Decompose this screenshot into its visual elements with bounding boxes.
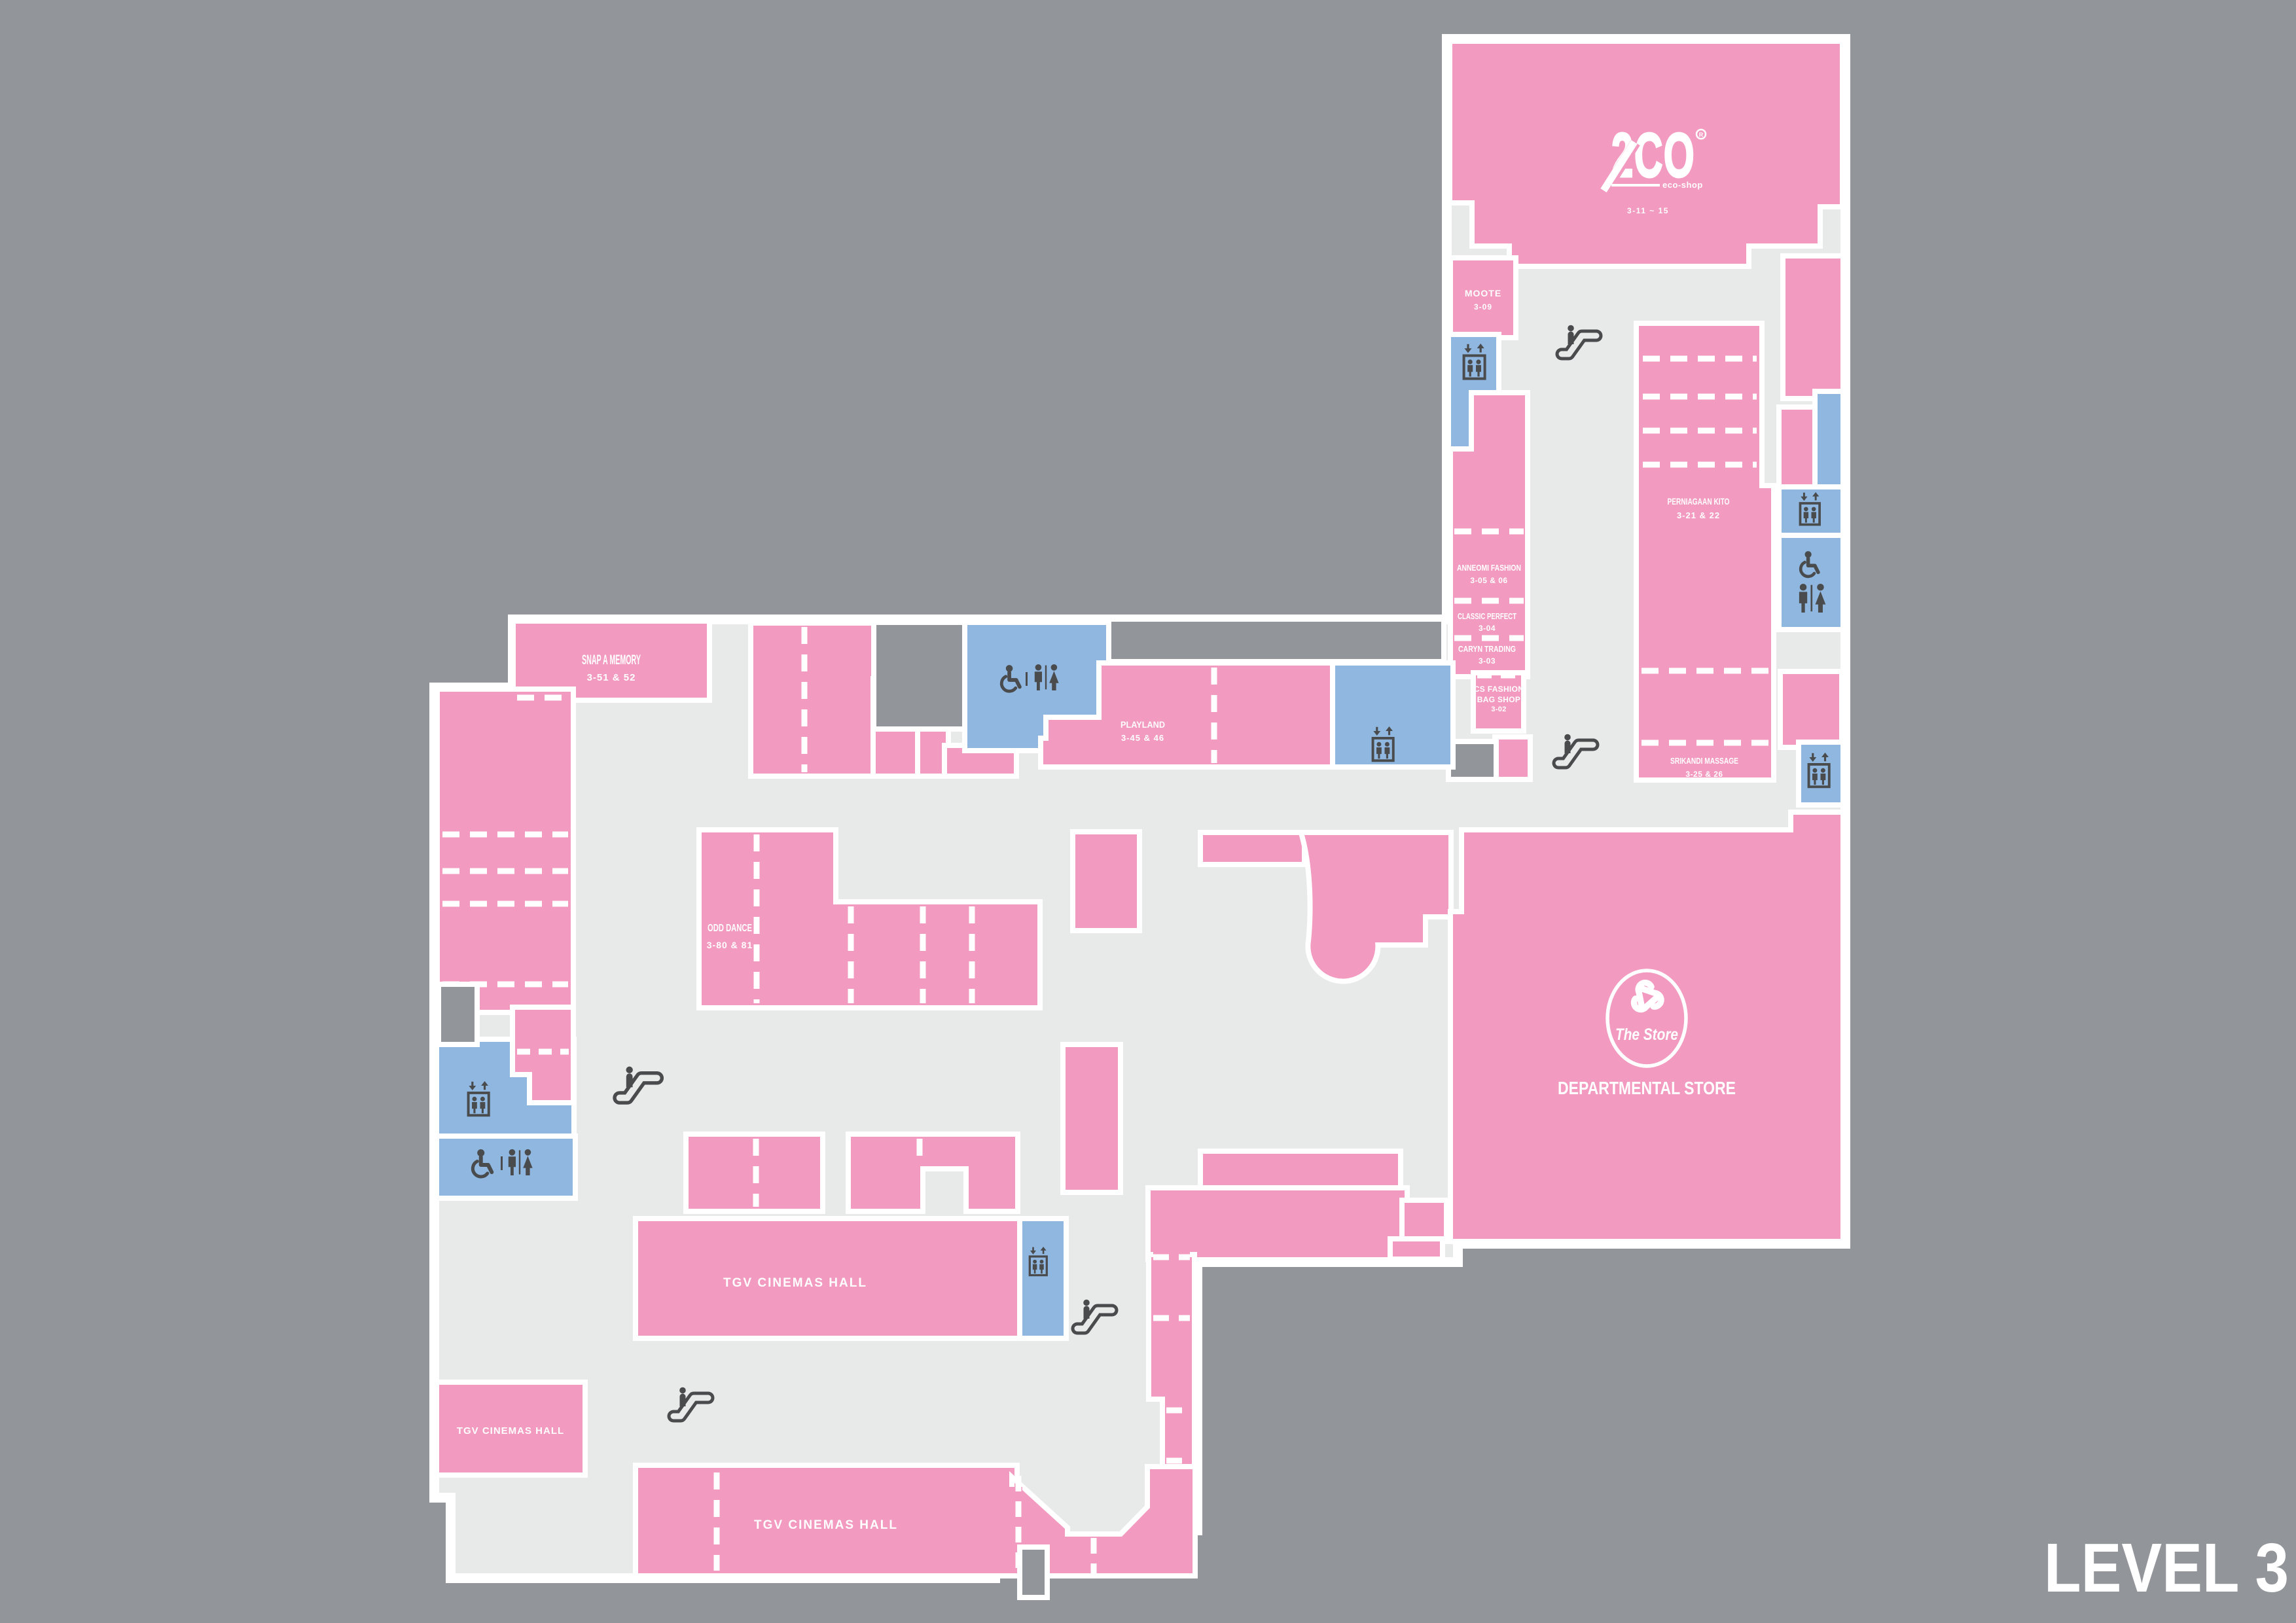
svg-text:ODD DANCE: ODD DANCE bbox=[708, 923, 752, 934]
svg-text:CARYN TRADING: CARYN TRADING bbox=[1458, 644, 1516, 654]
svg-text:CLASSIC PERFECT: CLASSIC PERFECT bbox=[1458, 611, 1516, 621]
svg-text:3-05 & 06: 3-05 & 06 bbox=[1470, 576, 1507, 585]
svg-text:PERNIAGAAN KITO: PERNIAGAAN KITO bbox=[1668, 496, 1730, 507]
svg-text:3-03: 3-03 bbox=[1479, 656, 1496, 666]
svg-text:ANNEOMI FASHION: ANNEOMI FASHION bbox=[1457, 563, 1521, 573]
svg-text:eco-shop: eco-shop bbox=[1662, 180, 1703, 190]
svg-text:3-51 & 52: 3-51 & 52 bbox=[587, 672, 636, 683]
svg-text:TGV CINEMAS HALL: TGV CINEMAS HALL bbox=[457, 1425, 564, 1436]
svg-text:CS FASHION: CS FASHION bbox=[1474, 685, 1524, 694]
svg-text:3-45 & 46: 3-45 & 46 bbox=[1121, 733, 1164, 743]
svg-text:3-21 & 22: 3-21 & 22 bbox=[1677, 510, 1720, 520]
svg-text:3-09: 3-09 bbox=[1474, 302, 1492, 312]
svg-text:BAG SHOP: BAG SHOP bbox=[1477, 695, 1520, 704]
svg-text:3-25 & 26: 3-25 & 26 bbox=[1685, 770, 1723, 779]
svg-text:3-04: 3-04 bbox=[1479, 624, 1496, 633]
svg-text:DEPARTMENTAL STORE: DEPARTMENTAL STORE bbox=[1558, 1078, 1736, 1098]
svg-text:3-11 ~ 15: 3-11 ~ 15 bbox=[1627, 206, 1669, 215]
svg-text:SNAP A MEMORY: SNAP A MEMORY bbox=[582, 652, 641, 668]
svg-text:SRIKANDI MASSAGE: SRIKANDI MASSAGE bbox=[1670, 756, 1738, 766]
svg-text:3-80 & 81: 3-80 & 81 bbox=[707, 940, 753, 950]
svg-text:TGV CINEMAS HALL: TGV CINEMAS HALL bbox=[723, 1276, 867, 1290]
svg-text:MOOTE: MOOTE bbox=[1465, 288, 1501, 298]
svg-text:LEVEL 3: LEVEL 3 bbox=[2044, 1529, 2289, 1607]
svg-text:The Store: The Store bbox=[1615, 1026, 1678, 1044]
svg-text:R: R bbox=[1699, 132, 1704, 138]
svg-text:TGV CINEMAS HALL: TGV CINEMAS HALL bbox=[754, 1518, 898, 1532]
svg-text:PLAYLAND: PLAYLAND bbox=[1121, 719, 1165, 730]
svg-text:3-02: 3-02 bbox=[1491, 705, 1506, 713]
